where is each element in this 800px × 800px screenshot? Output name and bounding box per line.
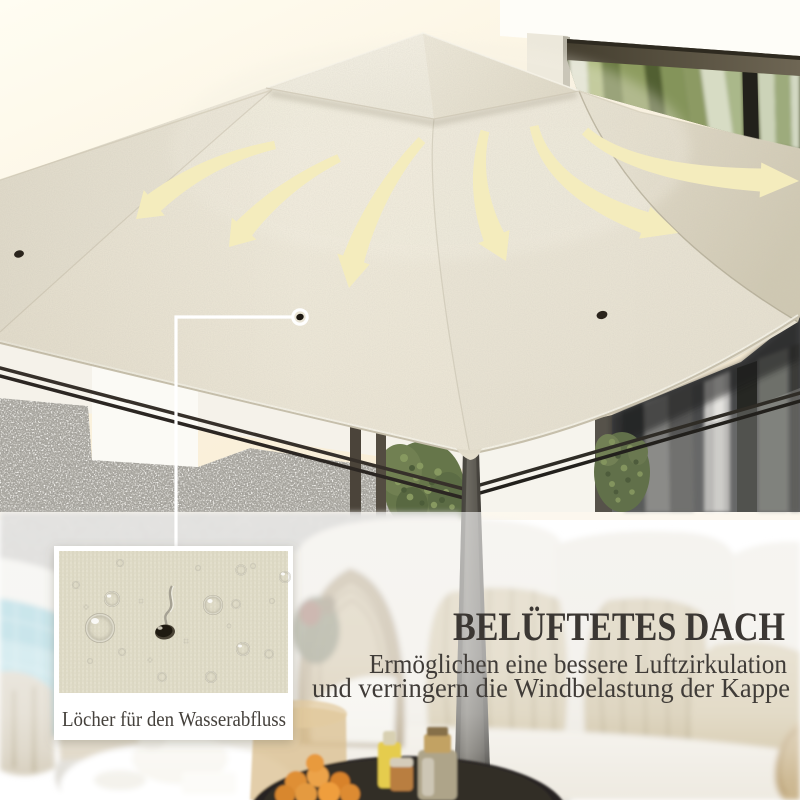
svg-text:und verringern die Windbelastu: und verringern die Windbelastung der Kap… [312,673,790,703]
svg-text:Löcher für den Wasserabfluss: Löcher für den Wasserabfluss [62,707,286,731]
svg-text:BELÜFTETES DACH: BELÜFTETES DACH [453,604,785,649]
